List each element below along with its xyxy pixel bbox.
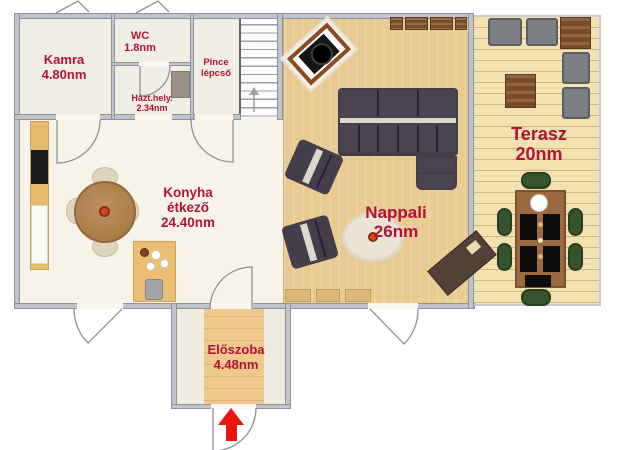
room-area: 4.48nm — [207, 358, 264, 373]
room-name: Előszoba — [207, 343, 264, 358]
stove — [31, 150, 48, 184]
wall — [14, 13, 20, 309]
wall-shelf — [455, 17, 467, 30]
room-label-nappali: Nappali 26nm — [365, 203, 426, 241]
window-symbol — [136, 1, 169, 13]
outdoor-sofa-cushion — [526, 18, 558, 46]
wall-shelf — [430, 17, 453, 30]
sofa-chaise — [416, 156, 457, 190]
plate — [530, 194, 548, 212]
candle — [538, 222, 543, 227]
placemat — [543, 246, 560, 272]
room-name: Házt.hely. — [131, 93, 172, 103]
wall-shelf — [390, 17, 403, 30]
room-label-hazthely: Házt.hely. 2.34nm — [131, 93, 172, 113]
table-centerpiece — [99, 206, 110, 217]
door-opening — [135, 114, 172, 120]
room-area: 4.80nm — [42, 68, 87, 83]
wall — [171, 303, 177, 409]
room-label-wc: WC 1.8nm — [124, 30, 156, 55]
room-name: Terasz — [511, 124, 567, 144]
window-symbol — [56, 1, 89, 13]
room-name: Kamra — [42, 53, 87, 68]
room-area: 2.34nm — [131, 103, 172, 113]
placemat — [520, 214, 537, 240]
door-opening — [56, 114, 100, 120]
basement-stairs — [239, 17, 279, 118]
room-label-pince-lepcso: Pince lépcső — [201, 58, 231, 79]
plate — [160, 259, 169, 268]
wall — [277, 13, 283, 120]
outdoor-corner-table — [560, 17, 591, 49]
candle — [538, 254, 543, 259]
room-label-eloszoba: Előszoba 4.48nm — [207, 343, 264, 372]
room-area: 26nm — [365, 222, 426, 241]
door-opening — [139, 62, 169, 66]
placemat — [520, 246, 537, 272]
room-area: 24.40nm — [161, 215, 215, 230]
door-arc — [74, 309, 122, 343]
floor-mat — [316, 289, 340, 302]
wall — [111, 13, 115, 120]
washing-machine — [171, 71, 190, 98]
outdoor-sofa-cushion — [488, 18, 522, 46]
room-name: étkező — [161, 200, 215, 215]
room-area: 1.8nm — [124, 42, 156, 54]
room-name: WC — [124, 30, 156, 42]
wall — [190, 13, 194, 120]
room-area: 20nm — [511, 144, 567, 164]
terrace-edge — [599, 15, 601, 306]
wall-shelf — [405, 17, 428, 30]
wall — [285, 303, 291, 409]
floor-mat — [285, 289, 311, 302]
desk-papers — [466, 240, 481, 255]
sectional-sofa — [338, 88, 458, 156]
high-chair — [145, 279, 163, 300]
floor-mat — [345, 289, 371, 302]
terrace-dining-chair — [568, 208, 583, 236]
terrace-dining-table — [515, 190, 566, 288]
placemat — [525, 275, 551, 287]
candle — [538, 238, 543, 243]
outdoor-sofa-cushion — [562, 87, 590, 119]
terrace-dining-chair — [521, 172, 551, 189]
door-arc — [370, 309, 418, 344]
room-label-kamra: Kamra 4.80nm — [42, 53, 87, 82]
plate — [146, 262, 155, 271]
kitchen-sink — [31, 205, 48, 264]
door-opening — [211, 303, 253, 309]
room-name: lépcső — [201, 69, 231, 80]
terrace-dining-chair — [497, 243, 512, 271]
outdoor-coffee-table — [505, 74, 536, 108]
terrace-dining-chair — [568, 243, 583, 271]
door-opening — [195, 114, 233, 120]
entrance-arrow-icon — [218, 408, 244, 441]
terrace-dining-chair — [521, 289, 551, 306]
room-name: Konyha — [161, 185, 215, 200]
placemat — [543, 214, 560, 240]
door-opening — [77, 303, 123, 309]
outdoor-sofa-cushion — [562, 52, 590, 84]
room-label-konyha: Konyha étkező 24.40nm — [161, 185, 215, 230]
room-name: Nappali — [365, 203, 426, 222]
door-opening — [368, 303, 418, 309]
room-label-terasz: Terasz 20nm — [511, 124, 567, 164]
terrace-dining-chair — [497, 208, 512, 236]
floor-plan: Kamra 4.80nm WC 1.8nm Pince lépcső Házt.… — [0, 0, 620, 450]
plate — [151, 250, 161, 260]
bowl — [140, 248, 149, 257]
